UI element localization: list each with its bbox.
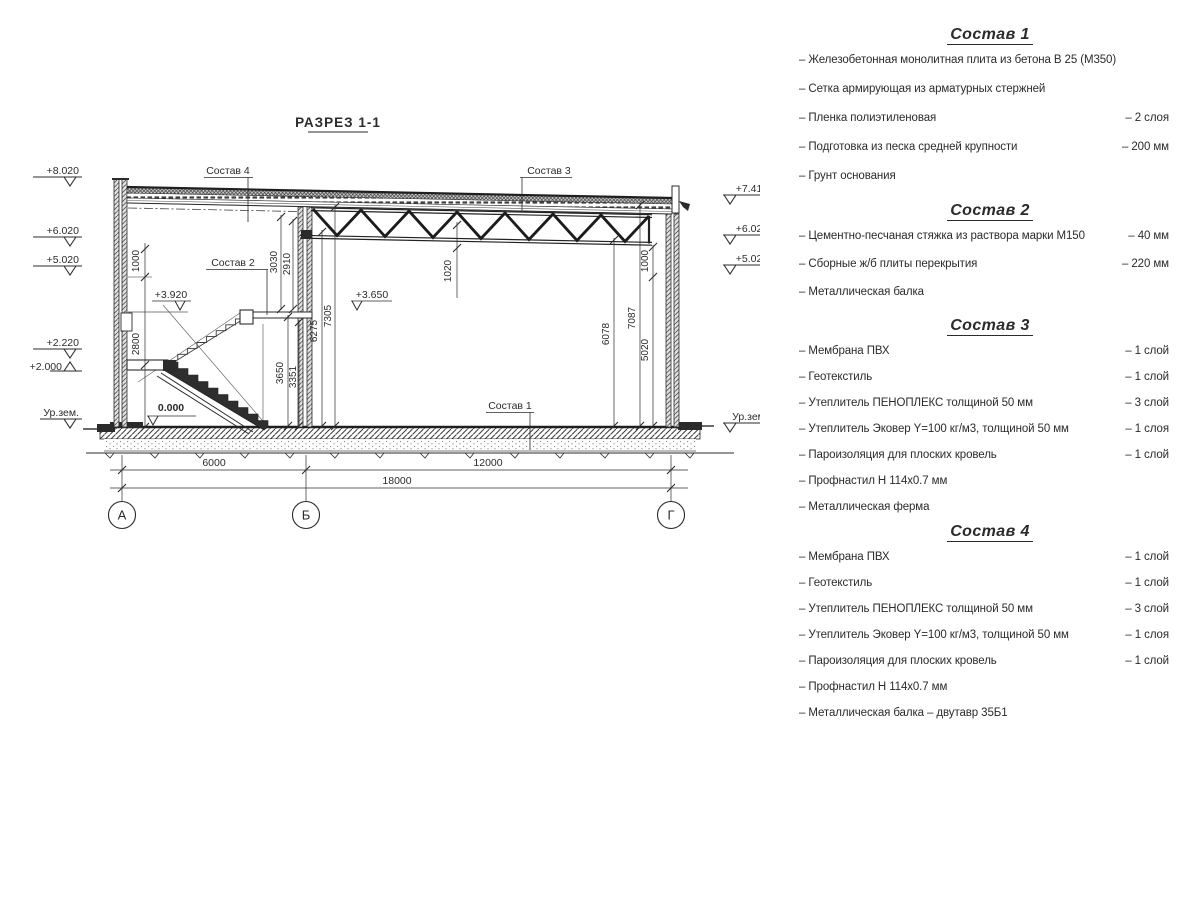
beam-section bbox=[240, 310, 253, 324]
dim-chain-left: 1000 2800 bbox=[128, 243, 152, 431]
material-item: – Металлическая балка – двутавр 35Б1 bbox=[791, 707, 1189, 720]
section-title-text: РАЗРЕЗ 1-1 bbox=[295, 115, 381, 130]
material-item: – Профнастил Н 114х0.7 мм bbox=[791, 681, 1189, 694]
sostav-4-title: Состав 4 bbox=[791, 523, 1189, 545]
svg-text:+6.020: +6.020 bbox=[736, 223, 760, 235]
dim-6275: 6275 bbox=[309, 319, 320, 342]
material-item: – Пленка полиэтиленовая– 2 слоя bbox=[791, 112, 1189, 125]
svg-text:Состав 1: Состав 1 bbox=[488, 400, 532, 412]
dim-1000-right: 1000 bbox=[640, 249, 651, 272]
section-drawing: РАЗРЕЗ 1-1 bbox=[0, 0, 760, 560]
svg-text:+3.920: +3.920 bbox=[155, 289, 188, 301]
steel-truss bbox=[300, 208, 652, 245]
material-item: – Мембрана ПВХ– 1 слой bbox=[791, 551, 1189, 564]
level-zero: 0.000 bbox=[147, 402, 196, 425]
ground-line bbox=[86, 453, 734, 458]
svg-text:Ур.зем.: Ур.зем. bbox=[43, 407, 79, 419]
svg-text:Состав 3: Состав 3 bbox=[527, 165, 571, 177]
elev-5020-l: +5.020 bbox=[33, 254, 82, 275]
svg-text:Состав 2: Состав 2 bbox=[211, 257, 255, 269]
material-item: – Железобетонная монолитная плита из бет… bbox=[791, 54, 1189, 67]
dim-7087: 7087 bbox=[627, 306, 638, 329]
lower-flight bbox=[162, 362, 268, 430]
elevation-flags-right: +7.410 +6.020 +5.020 Ур.зем. bbox=[723, 183, 760, 432]
elev-2000: +2.000 bbox=[30, 361, 82, 373]
level-3920: +3.920 bbox=[152, 289, 191, 310]
elev-5020-r: +5.020 bbox=[723, 253, 760, 274]
plinth-right bbox=[678, 422, 714, 430]
elev-6020-r: +6.020 bbox=[723, 223, 760, 244]
svg-text:Состав 4: Состав 4 bbox=[206, 165, 250, 177]
dim-1000-left: 1000 bbox=[131, 249, 142, 272]
material-item: – Сборные ж/б плиты перекрытия– 220 мм bbox=[791, 258, 1189, 271]
dim-12000: 12000 bbox=[473, 457, 502, 469]
material-item: – Сетка армирующая из арматурных стержне… bbox=[791, 83, 1189, 96]
material-item: – Утеплитель ПЕНОПЛЕКС толщиной 50 мм– 3… bbox=[791, 397, 1189, 410]
axis-b: Б bbox=[302, 508, 311, 523]
sostav-2-section: Состав 2 – Цементно-песчаная стяжка из р… bbox=[791, 202, 1189, 314]
dim-3030: 3030 bbox=[269, 250, 280, 273]
dim-3650: 3650 bbox=[275, 361, 286, 384]
sostav-2-title: Состав 2 bbox=[791, 202, 1189, 224]
material-item: – Мембрана ПВХ– 1 слой bbox=[791, 345, 1189, 358]
horizontal-dimensions: 6000 12000 18000 bbox=[110, 455, 688, 501]
material-item: – Пароизоляция для плоских кровель– 1 сл… bbox=[791, 655, 1189, 668]
material-item: – Пароизоляция для плоских кровель– 1 сл… bbox=[791, 449, 1189, 462]
sostav-1-title: Состав 1 bbox=[791, 26, 1189, 48]
dim-3351: 3351 bbox=[288, 365, 299, 388]
dim-2800: 2800 bbox=[131, 332, 142, 355]
dim-6000: 6000 bbox=[202, 457, 226, 469]
dim-chain-hall-left: 6275 7305 bbox=[309, 203, 339, 430]
dim-7305: 7305 bbox=[323, 304, 334, 327]
material-item: – Металлическая ферма bbox=[791, 501, 1189, 514]
elev-6020-l: +6.020 bbox=[33, 225, 82, 246]
svg-text:+5.020: +5.020 bbox=[736, 253, 760, 265]
cad-sheet: РАЗРЕЗ 1-1 bbox=[0, 0, 1200, 900]
sostav-4-section: Состав 4 – Мембрана ПВХ– 1 слой – Геотек… bbox=[791, 523, 1189, 733]
slab-3920 bbox=[252, 312, 312, 318]
axis-a: А bbox=[118, 508, 127, 523]
ground-level-right: Ур.зем. bbox=[723, 411, 760, 432]
wall-a bbox=[112, 179, 129, 427]
dim-2910: 2910 bbox=[282, 252, 293, 275]
elev-7410: +7.410 bbox=[723, 183, 760, 204]
landing-2000 bbox=[127, 360, 168, 370]
callout-sostav2: Состав 2 bbox=[206, 257, 268, 315]
svg-text:+7.410: +7.410 bbox=[736, 183, 760, 195]
dim-5020: 5020 bbox=[640, 338, 651, 361]
svg-text:Ур.зем.: Ур.зем. bbox=[732, 411, 760, 423]
sostav-1-section: Состав 1 – Железобетонная монолитная пли… bbox=[791, 26, 1189, 199]
wall-console bbox=[121, 313, 132, 331]
ground-level-left: Ур.зем. bbox=[40, 407, 82, 428]
svg-text:+6.020: +6.020 bbox=[47, 225, 80, 237]
material-item: – Утеплитель Эковер Y=100 кг/м3, толщино… bbox=[791, 423, 1189, 436]
dim-truss-height: 1020 bbox=[443, 221, 461, 298]
elev-2220: +2.220 bbox=[33, 337, 82, 358]
elevation-flags-left: +8.020 +6.020 +5.020 +2.220 +2.000 Ур.зе… bbox=[30, 165, 82, 428]
svg-text:+8.020: +8.020 bbox=[47, 165, 80, 177]
dim-6078: 6078 bbox=[601, 322, 612, 345]
material-item: – Грунт основания bbox=[791, 170, 1189, 183]
material-item: – Геотекстиль– 1 слой bbox=[791, 371, 1189, 384]
material-item: – Утеплитель ПЕНОПЛЕКС толщиной 50 мм– 3… bbox=[791, 603, 1189, 616]
material-item: – Цементно-песчаная стяжка из раствора м… bbox=[791, 230, 1189, 243]
material-item: – Геотекстиль– 1 слой bbox=[791, 577, 1189, 590]
sostav-3-section: Состав 3 – Мембрана ПВХ– 1 слой – Геотек… bbox=[791, 317, 1189, 527]
material-item: – Металлическая балка bbox=[791, 286, 1189, 299]
svg-text:+2.220: +2.220 bbox=[47, 337, 80, 349]
sostav-3-title: Состав 3 bbox=[791, 317, 1189, 339]
dim-1020: 1020 bbox=[443, 259, 454, 282]
level-3650: +3.650 bbox=[351, 289, 392, 310]
material-item: – Подготовка из песка средней крупности–… bbox=[791, 141, 1189, 154]
svg-text:+3.650: +3.650 bbox=[356, 289, 389, 301]
material-item: – Профнастил Н 114х0.7 мм bbox=[791, 475, 1189, 488]
material-item: – Утеплитель Эковер Y=100 кг/м3, толщино… bbox=[791, 629, 1189, 642]
dim-18000: 18000 bbox=[382, 475, 411, 487]
dim-chain-3650-3351: 3650 3351 bbox=[275, 313, 303, 430]
axis-g: Г bbox=[667, 508, 674, 523]
svg-text:0.000: 0.000 bbox=[158, 402, 184, 414]
elev-8020: +8.020 bbox=[33, 165, 82, 186]
floor-slab bbox=[100, 427, 700, 451]
dim-chain-3030-2910: 3030 2910 bbox=[269, 213, 297, 313]
vertical-dimensions: 1000 2800 3030 2910 3650 3351 6275 7305 bbox=[128, 201, 657, 431]
axis-bubbles: А Б Г bbox=[109, 502, 685, 529]
svg-text:+5.020: +5.020 bbox=[47, 254, 80, 266]
wall-g bbox=[666, 214, 679, 427]
drip-edge bbox=[679, 201, 690, 211]
drawing-title: РАЗРЕЗ 1-1 bbox=[295, 115, 381, 132]
